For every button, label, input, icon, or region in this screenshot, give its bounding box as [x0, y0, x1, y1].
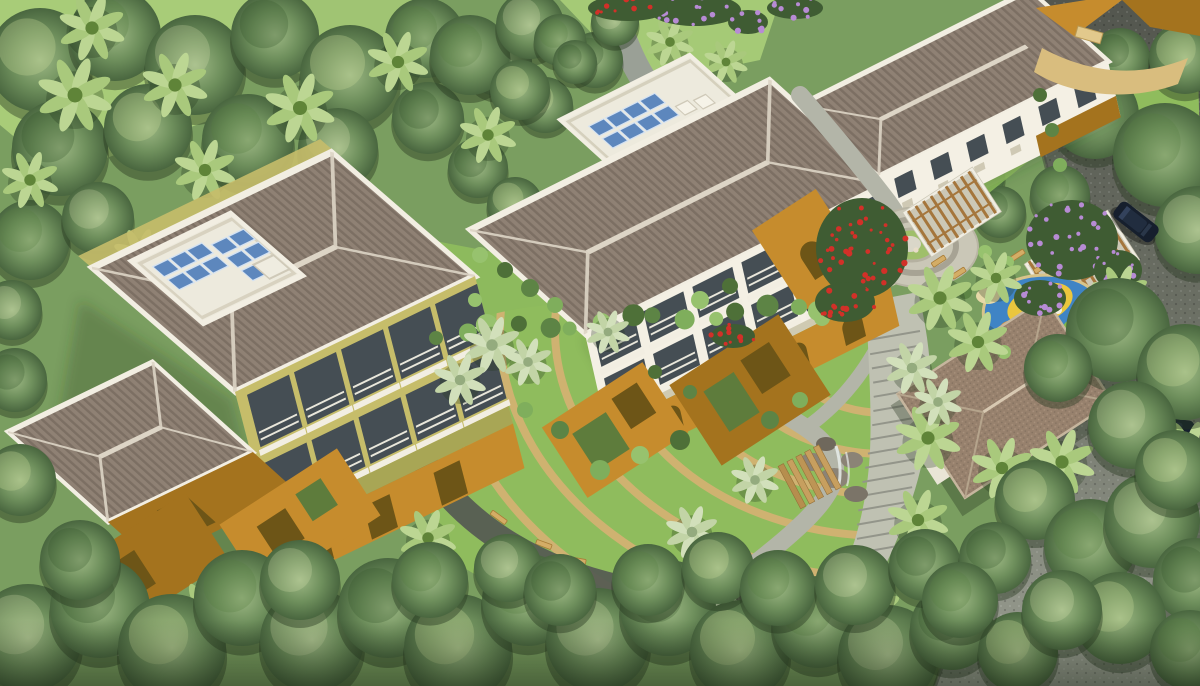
flower: [1056, 271, 1062, 277]
flower: [1058, 284, 1062, 288]
palm-crown: [455, 375, 466, 386]
tree-highlight: [1147, 334, 1200, 387]
flower: [759, 26, 765, 32]
flower: [835, 238, 839, 242]
palm-crown: [604, 328, 613, 337]
flower: [865, 249, 870, 254]
tree-highlight: [1031, 341, 1068, 378]
flower: [698, 6, 701, 9]
flower: [1048, 282, 1052, 286]
flower: [1066, 206, 1070, 210]
palm-crown: [912, 514, 924, 526]
flower: [854, 304, 858, 308]
flower: [850, 231, 854, 235]
shrub: [468, 293, 482, 307]
shrub: [497, 262, 513, 278]
palm-crown: [293, 101, 307, 115]
tree-highlight: [1076, 288, 1133, 345]
flower: [1079, 215, 1083, 219]
shrub: [1033, 88, 1047, 102]
palm-crown: [921, 431, 934, 444]
shrub: [670, 430, 690, 450]
bottom-shade: [0, 620, 1200, 686]
flower: [1027, 226, 1032, 231]
flower: [773, 1, 777, 5]
palm-crown: [933, 291, 946, 304]
flower: [1037, 310, 1043, 316]
shrub: [541, 318, 561, 338]
tree-highlight: [69, 189, 109, 229]
flower: [1046, 307, 1052, 313]
flower: [840, 312, 845, 317]
tree-highlight: [399, 89, 439, 129]
tree-highlight: [204, 560, 257, 613]
palm-crown: [665, 37, 675, 47]
palm-crown: [523, 357, 533, 367]
flower: [752, 338, 755, 341]
flower: [1057, 264, 1063, 270]
palm-crown: [168, 78, 181, 91]
flower: [861, 279, 866, 284]
flower: [865, 288, 868, 291]
tree-highlight: [896, 536, 936, 576]
shrub: [709, 312, 723, 326]
flower: [1070, 247, 1074, 251]
flower: [840, 306, 845, 311]
tree-highlight: [930, 570, 972, 612]
palm-crown: [24, 174, 35, 185]
shrub: [511, 316, 527, 332]
flower: [729, 341, 732, 344]
flower: [902, 236, 908, 242]
flower: [822, 311, 826, 315]
rock: [841, 452, 863, 468]
flower: [631, 6, 637, 12]
flower: [1028, 242, 1033, 247]
palm-crown: [722, 58, 731, 67]
flower: [791, 15, 797, 21]
tree-highlight: [48, 528, 92, 572]
flower: [853, 234, 858, 239]
flower: [870, 228, 873, 231]
flower: [600, 10, 603, 13]
tree-highlight: [310, 35, 365, 90]
flower: [648, 5, 653, 10]
tree-highlight: [268, 548, 312, 592]
shrub: [722, 278, 738, 294]
flower: [757, 19, 761, 23]
flower: [836, 226, 842, 232]
palm-crown: [1055, 455, 1068, 468]
flower: [826, 288, 832, 294]
flower: [1131, 263, 1134, 266]
flower: [803, 7, 809, 13]
palm-crown: [907, 363, 918, 374]
shrub: [757, 295, 779, 317]
flower: [881, 206, 884, 209]
flower: [604, 3, 609, 8]
tree-highlight: [748, 558, 790, 600]
flower: [735, 28, 741, 34]
shrub: [563, 322, 577, 336]
flower: [1056, 303, 1062, 309]
flower: [725, 5, 729, 9]
rock: [844, 486, 868, 502]
tree-highlight: [823, 553, 867, 597]
flower: [1036, 262, 1041, 267]
tree-highlight: [400, 550, 442, 592]
palm-crown: [750, 475, 760, 485]
flower: [724, 342, 728, 346]
flower: [796, 2, 800, 6]
flower-foliage: [815, 282, 875, 322]
shrub: [691, 291, 709, 309]
flower: [827, 313, 832, 318]
flower: [1079, 202, 1084, 207]
shrub: [683, 385, 697, 399]
flower: [701, 16, 707, 22]
flower: [778, 6, 783, 11]
tree-highlight: [531, 561, 571, 601]
shrub: [429, 331, 443, 345]
palm-crown: [392, 56, 404, 68]
flower-bed: [816, 198, 908, 298]
palm-crown: [482, 129, 493, 140]
flower-bed: [1014, 280, 1066, 316]
flower: [851, 293, 857, 299]
tree-highlight: [557, 44, 581, 68]
flower: [739, 11, 744, 16]
flower: [864, 217, 868, 221]
shrub: [521, 279, 539, 297]
tree-highlight: [0, 208, 42, 252]
flower: [887, 247, 892, 252]
flower: [857, 219, 863, 225]
flower: [872, 305, 876, 309]
flower: [806, 15, 810, 19]
shrub: [761, 411, 779, 429]
palm-crown: [972, 336, 984, 348]
aerial-render-image: [0, 0, 1200, 686]
shrub: [1045, 123, 1059, 137]
flower-foliage: [711, 324, 755, 348]
flower: [727, 323, 731, 327]
tree-highlight: [1143, 438, 1187, 482]
flower: [664, 17, 670, 23]
flower: [1039, 305, 1042, 308]
flower: [843, 249, 849, 255]
flower: [730, 17, 735, 22]
flower: [881, 268, 887, 274]
flower: [1037, 241, 1043, 247]
palm-crown: [933, 397, 943, 407]
flower: [1096, 225, 1101, 230]
flower: [1076, 232, 1080, 236]
tree-highlight: [496, 66, 529, 99]
flower: [833, 306, 837, 310]
flower: [673, 18, 679, 24]
flower: [1044, 217, 1049, 222]
flower: [871, 276, 876, 281]
tree-highlight: [619, 551, 659, 591]
palm-crown: [486, 339, 497, 350]
flower: [1034, 214, 1037, 217]
flower: [885, 238, 889, 242]
palm-crown: [687, 527, 698, 538]
palm-crown: [68, 88, 83, 103]
tree-highlight: [1097, 390, 1145, 438]
flower: [1057, 293, 1062, 298]
flower: [859, 206, 864, 211]
flower: [708, 332, 713, 337]
flower: [1050, 251, 1054, 255]
shrub: [726, 303, 744, 321]
flower: [881, 280, 886, 285]
tree-highlight: [1003, 468, 1047, 512]
shrub: [791, 299, 807, 315]
tree-highlight: [1123, 113, 1180, 170]
flower: [862, 272, 868, 278]
tree-highlight: [438, 23, 482, 67]
flower: [849, 223, 853, 227]
flower: [899, 269, 903, 273]
flower: [1028, 287, 1031, 290]
flower: [831, 256, 835, 260]
flower: [691, 23, 694, 26]
apartment-complex-scene: [0, 0, 1200, 686]
flower: [710, 12, 716, 18]
flower: [1025, 291, 1028, 294]
tree-highlight: [481, 541, 518, 578]
flower: [884, 223, 888, 227]
flower: [827, 267, 832, 272]
flower: [726, 326, 731, 331]
shrub: [648, 365, 662, 379]
flower: [1112, 250, 1116, 254]
shrub: [472, 247, 488, 263]
flower: [1102, 211, 1106, 215]
flower: [1102, 262, 1105, 265]
tree-highlight: [1053, 508, 1104, 559]
flower: [873, 262, 876, 265]
shrub: [547, 297, 563, 313]
flower: [1091, 221, 1097, 227]
shrub: [517, 402, 533, 418]
flower: [614, 9, 617, 12]
flower: [755, 10, 760, 15]
flower: [737, 334, 743, 340]
shrub: [551, 421, 569, 439]
person: [913, 247, 918, 252]
flower: [891, 243, 895, 247]
palm-crown: [85, 21, 98, 34]
flower: [595, 11, 599, 15]
flower: [1116, 252, 1119, 255]
flower: [717, 331, 723, 337]
flower: [1080, 244, 1086, 250]
flower: [1053, 234, 1059, 240]
palm-crown: [422, 532, 433, 543]
flower: [658, 17, 661, 20]
tree-highlight: [211, 103, 262, 154]
shrub: [792, 392, 808, 408]
tree-highlight: [689, 539, 729, 579]
flower: [879, 231, 882, 234]
flower: [837, 207, 841, 211]
flower: [848, 247, 852, 251]
tree-highlight: [1036, 171, 1069, 204]
tree-highlight: [240, 0, 288, 48]
shrub: [675, 309, 695, 329]
flower: [1050, 203, 1053, 206]
flower: [1027, 300, 1031, 304]
shrub: [644, 307, 660, 323]
flower: [830, 233, 834, 237]
palm-crown: [991, 273, 1002, 284]
shrub: [1053, 158, 1067, 172]
flower: [838, 259, 844, 265]
palm-crown: [199, 164, 211, 176]
flower: [818, 258, 823, 263]
flower-bed: [728, 10, 768, 34]
flower: [1068, 235, 1072, 239]
flower: [829, 246, 835, 252]
tree-highlight: [1030, 578, 1074, 622]
tree-highlight: [966, 529, 1006, 569]
tree-highlight: [0, 18, 56, 75]
flower: [1094, 247, 1098, 251]
shrub: [590, 460, 610, 480]
shrub: [631, 446, 649, 464]
flower: [901, 260, 907, 266]
